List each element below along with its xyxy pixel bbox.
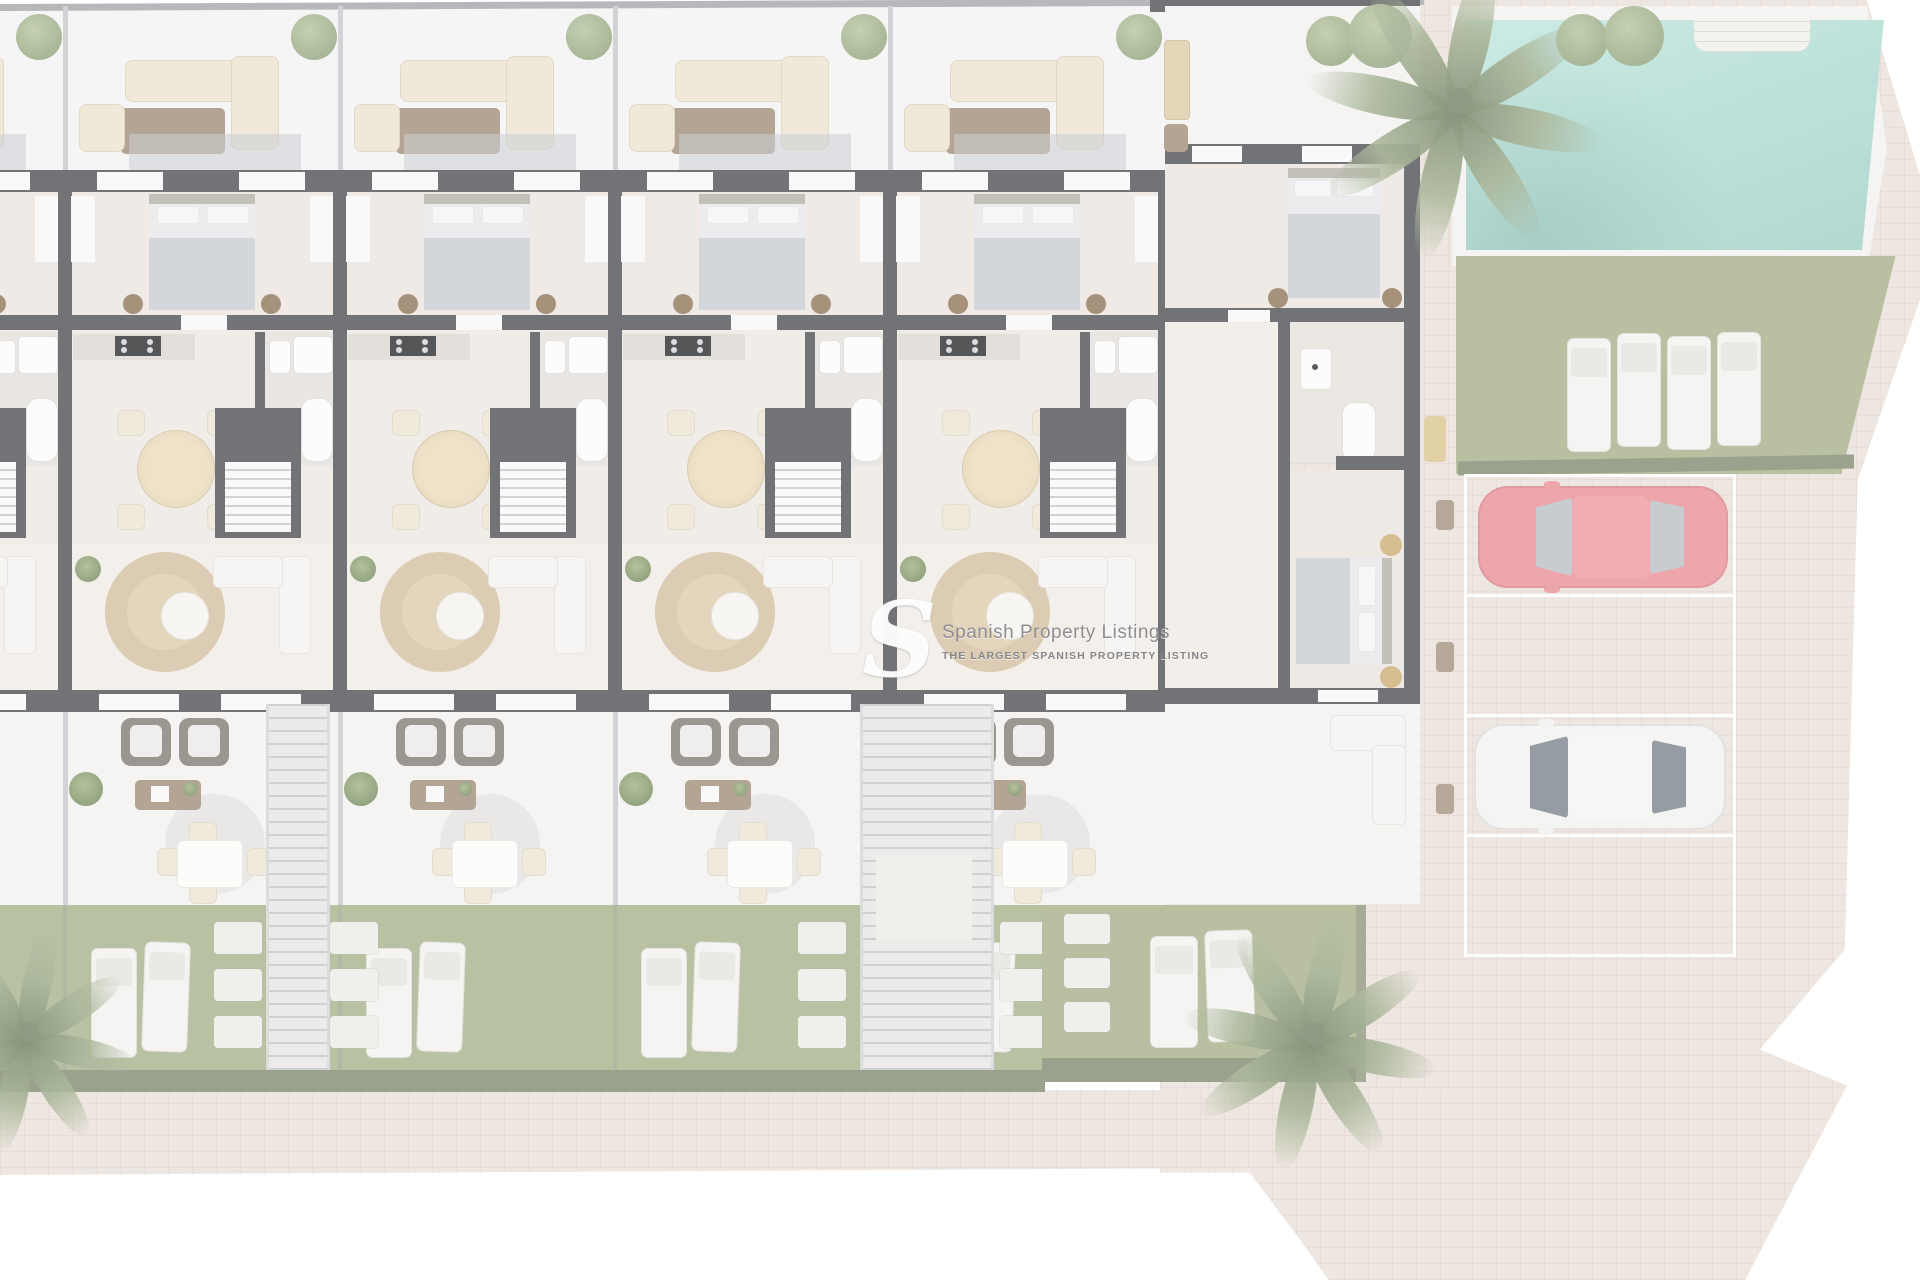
window bbox=[1064, 172, 1130, 190]
dining-table bbox=[412, 430, 490, 508]
tan-lounger bbox=[1424, 416, 1446, 462]
unit-party-wall bbox=[58, 170, 72, 712]
sofa bbox=[213, 556, 283, 588]
window bbox=[1046, 694, 1126, 710]
sofa bbox=[763, 556, 833, 588]
door-opening bbox=[181, 315, 227, 330]
plant bbox=[458, 782, 472, 796]
stepping-stone bbox=[214, 922, 262, 954]
bush bbox=[841, 14, 887, 60]
round-armchair bbox=[986, 592, 1034, 640]
pillow bbox=[207, 206, 249, 224]
wardrobe bbox=[310, 196, 334, 262]
stepping-stone bbox=[1064, 914, 1110, 944]
bed-headboard bbox=[699, 194, 805, 204]
unit-party-wall bbox=[883, 170, 897, 712]
tv bbox=[426, 786, 444, 802]
pillow bbox=[757, 206, 799, 224]
terrace-divider bbox=[613, 712, 618, 905]
round-bush bbox=[1348, 4, 1412, 68]
pergola-shadow bbox=[679, 134, 851, 170]
sofa bbox=[1104, 556, 1136, 654]
nightstand bbox=[1086, 294, 1106, 314]
garden-divider-hedge bbox=[613, 905, 617, 1072]
side-table bbox=[1164, 124, 1188, 152]
unit-party-wall bbox=[333, 170, 347, 712]
stair-landing bbox=[876, 856, 972, 940]
pillow bbox=[157, 206, 199, 224]
car-mirror bbox=[1538, 827, 1554, 835]
terrace-armchair bbox=[454, 718, 504, 766]
wall bbox=[1165, 688, 1420, 704]
sun-lounger bbox=[1150, 936, 1198, 1048]
bed-headboard bbox=[1382, 558, 1392, 664]
dining-chair bbox=[392, 410, 420, 436]
outdoor-sofa bbox=[1372, 745, 1406, 825]
cooktop bbox=[665, 336, 711, 356]
garden-hedge bbox=[0, 1070, 1045, 1092]
bathtub bbox=[301, 398, 333, 462]
car-mirror bbox=[1538, 719, 1554, 727]
pool-water bbox=[1466, 20, 1886, 250]
bathtub bbox=[1342, 402, 1376, 462]
outdoor-stair-west bbox=[266, 704, 330, 1092]
armchair bbox=[79, 104, 125, 152]
bathroom-sink bbox=[0, 340, 16, 374]
car-rear-glass bbox=[1652, 740, 1686, 814]
shower bbox=[568, 336, 608, 374]
bush bbox=[619, 772, 653, 806]
terrace-armchair bbox=[179, 718, 229, 766]
pillow bbox=[1294, 180, 1332, 197]
gold-pouf bbox=[1380, 666, 1402, 688]
shower bbox=[18, 336, 58, 374]
car-windshield bbox=[1530, 736, 1568, 818]
window bbox=[374, 694, 454, 710]
dining-chair bbox=[117, 410, 145, 436]
bush bbox=[69, 772, 103, 806]
pillow bbox=[1358, 566, 1376, 606]
bed-blanket bbox=[1296, 558, 1350, 664]
car-roof bbox=[1572, 496, 1650, 578]
unit-party-wall bbox=[608, 170, 622, 712]
wardrobe bbox=[860, 196, 884, 262]
door-opening bbox=[456, 315, 502, 330]
stepping-stone bbox=[1000, 922, 1048, 954]
window bbox=[647, 172, 713, 190]
white-car bbox=[1474, 724, 1726, 830]
bush bbox=[1116, 14, 1162, 60]
pergola-shadow bbox=[0, 134, 26, 170]
window bbox=[1302, 146, 1352, 162]
car-roof bbox=[1568, 734, 1652, 820]
garden-table bbox=[727, 840, 793, 888]
nightstand bbox=[0, 294, 6, 314]
pillow bbox=[707, 206, 749, 224]
sofa bbox=[4, 556, 36, 654]
terrace-divider bbox=[63, 6, 68, 170]
wardrobe bbox=[35, 196, 59, 262]
nightstand bbox=[948, 294, 968, 314]
bathroom-sink bbox=[819, 340, 841, 374]
round-armchair bbox=[711, 592, 759, 640]
garden-table bbox=[1002, 840, 1068, 888]
garden-divider-hedge bbox=[63, 905, 67, 1072]
plant bbox=[900, 556, 926, 582]
wardrobe bbox=[585, 196, 609, 262]
interior-stairs bbox=[0, 462, 16, 532]
interior-stairs bbox=[225, 462, 291, 532]
interior-stairs bbox=[1050, 462, 1116, 532]
stepping-stone bbox=[1064, 1002, 1110, 1032]
outdoor-sofa bbox=[125, 60, 245, 102]
bed-blanket bbox=[1288, 214, 1380, 298]
right-wing-hall bbox=[1165, 322, 1278, 690]
pergola-shadow bbox=[129, 134, 301, 170]
stepping-stone bbox=[798, 1016, 846, 1048]
bathroom-sink bbox=[269, 340, 291, 374]
cooktop bbox=[390, 336, 436, 356]
door-opening bbox=[1228, 310, 1270, 322]
car-mirror bbox=[1544, 481, 1560, 489]
sun-lounger bbox=[1204, 929, 1256, 1043]
wardrobe bbox=[1135, 196, 1159, 262]
bathtub bbox=[26, 398, 58, 462]
sofa bbox=[829, 556, 861, 654]
garden-chair bbox=[797, 848, 821, 876]
bed-blanket bbox=[699, 238, 805, 310]
armchair bbox=[629, 104, 675, 152]
nightstand bbox=[811, 294, 831, 314]
sofa bbox=[279, 556, 311, 654]
pool-steps bbox=[1694, 20, 1810, 52]
planter bbox=[1436, 784, 1454, 814]
stepping-stone bbox=[798, 922, 846, 954]
nightstand bbox=[398, 294, 418, 314]
terrace-armchair bbox=[671, 718, 721, 766]
shower bbox=[293, 336, 333, 374]
round-bush bbox=[1604, 6, 1664, 66]
bush bbox=[566, 14, 612, 60]
window bbox=[239, 172, 305, 190]
nightstand bbox=[673, 294, 693, 314]
sun-lounger bbox=[416, 941, 466, 1053]
bed-headboard bbox=[424, 194, 530, 204]
plant bbox=[75, 556, 101, 582]
bed-blanket bbox=[149, 238, 255, 310]
nightstand bbox=[1268, 288, 1288, 308]
terrace-divider bbox=[888, 6, 893, 170]
garden-table bbox=[452, 840, 518, 888]
stepping-stone bbox=[330, 922, 378, 954]
bed-headboard bbox=[974, 194, 1080, 204]
pool-sun-lounger bbox=[1717, 332, 1761, 446]
wardrobe bbox=[71, 196, 95, 262]
gold-pouf bbox=[1380, 534, 1402, 556]
garden-table bbox=[177, 840, 243, 888]
window bbox=[99, 694, 179, 710]
terrace-divider bbox=[338, 712, 343, 905]
bathroom-sink bbox=[1094, 340, 1116, 374]
window bbox=[771, 694, 851, 710]
window bbox=[0, 172, 30, 190]
interior-stairs bbox=[500, 462, 566, 532]
dining-chair bbox=[942, 410, 970, 436]
car-rear-glass bbox=[1650, 500, 1684, 574]
window bbox=[1192, 146, 1242, 162]
paved-walkway-bottom bbox=[0, 1090, 1460, 1280]
sun-lounger bbox=[141, 941, 191, 1053]
stepping-stone bbox=[214, 969, 262, 1001]
unit-2 bbox=[340, 6, 615, 1072]
bed-headboard bbox=[1288, 168, 1380, 178]
nightstand bbox=[261, 294, 281, 314]
round-bush bbox=[1556, 14, 1608, 66]
sofa bbox=[488, 556, 558, 588]
stepping-stone bbox=[214, 1016, 262, 1048]
outdoor-sofa bbox=[950, 60, 1070, 102]
wall bbox=[1165, 308, 1405, 322]
terrace-armchair bbox=[396, 718, 446, 766]
planter bbox=[1436, 500, 1454, 530]
red-car bbox=[1478, 486, 1728, 588]
pergola-shadow bbox=[404, 134, 576, 170]
stepping-stone bbox=[330, 1016, 378, 1048]
bathtub bbox=[1126, 398, 1158, 462]
armchair bbox=[354, 104, 400, 152]
pillow bbox=[482, 206, 524, 224]
car-mirror bbox=[1544, 585, 1560, 593]
window bbox=[922, 172, 988, 190]
sun-lounger bbox=[691, 941, 741, 1053]
dining-chair bbox=[117, 504, 145, 530]
shower bbox=[843, 336, 883, 374]
cooktop bbox=[115, 336, 161, 356]
outdoor-sofa bbox=[400, 60, 520, 102]
armchair bbox=[904, 104, 950, 152]
garden-chair bbox=[1072, 848, 1096, 876]
pillow bbox=[432, 206, 474, 224]
plant bbox=[350, 556, 376, 582]
shower bbox=[1118, 336, 1158, 374]
sofa bbox=[554, 556, 586, 654]
nightstand bbox=[536, 294, 556, 314]
dining-chair bbox=[667, 410, 695, 436]
pool-sun-lounger bbox=[1567, 338, 1611, 452]
bed-blanket bbox=[424, 238, 530, 310]
nightstand bbox=[123, 294, 143, 314]
right-wing-outer-wall bbox=[1404, 144, 1420, 690]
terrace-divider bbox=[338, 6, 343, 170]
wardrobe bbox=[346, 196, 370, 262]
window bbox=[514, 172, 580, 190]
sun-lounger bbox=[91, 948, 137, 1058]
wardrobe bbox=[621, 196, 645, 262]
dining-table bbox=[687, 430, 765, 508]
bathroom-sink bbox=[544, 340, 566, 374]
planter bbox=[1436, 642, 1454, 672]
unit-0-partial bbox=[0, 6, 65, 1072]
window bbox=[789, 172, 855, 190]
interior-stairs bbox=[775, 462, 841, 532]
window bbox=[372, 172, 438, 190]
floor-plan-scene: S Spanish Property Listings THE LARGEST … bbox=[0, 0, 1920, 1280]
sun-lounger bbox=[641, 948, 687, 1058]
wardrobe bbox=[896, 196, 920, 262]
stepping-stone bbox=[798, 969, 846, 1001]
sofa bbox=[1038, 556, 1108, 588]
wall bbox=[1336, 456, 1406, 470]
plant bbox=[183, 782, 197, 796]
stepping-stone bbox=[330, 969, 378, 1001]
pool-sun-lounger bbox=[1667, 336, 1711, 450]
plant bbox=[1008, 782, 1022, 796]
parking-slot bbox=[1464, 594, 1736, 717]
plant bbox=[733, 782, 747, 796]
window bbox=[1318, 690, 1378, 702]
door-opening bbox=[1006, 315, 1052, 330]
outdoor-sofa bbox=[675, 60, 795, 102]
bed-headboard bbox=[149, 194, 255, 204]
wall bbox=[1278, 322, 1290, 690]
bed-blanket bbox=[974, 238, 1080, 310]
plant bbox=[625, 556, 651, 582]
dining-chair bbox=[392, 504, 420, 530]
hedge bbox=[1042, 1058, 1366, 1082]
pillow bbox=[1032, 206, 1074, 224]
bathtub bbox=[576, 398, 608, 462]
car-windshield bbox=[1536, 498, 1572, 576]
window bbox=[496, 694, 576, 710]
round-armchair bbox=[161, 592, 209, 640]
pillow bbox=[1336, 180, 1374, 197]
bush bbox=[291, 14, 337, 60]
terrace-divider bbox=[63, 712, 68, 905]
terrace-armchair bbox=[1004, 718, 1054, 766]
door-opening bbox=[731, 315, 777, 330]
terrace-armchair bbox=[729, 718, 779, 766]
stepping-stone bbox=[1000, 1016, 1048, 1048]
parking-slot bbox=[1464, 834, 1736, 957]
dining-table bbox=[137, 430, 215, 508]
terrace-divider bbox=[613, 6, 618, 170]
round-armchair bbox=[436, 592, 484, 640]
bathtub bbox=[851, 398, 883, 462]
cooktop bbox=[940, 336, 986, 356]
pergola-shadow bbox=[954, 134, 1126, 170]
terrace-armchair bbox=[121, 718, 171, 766]
hedge bbox=[1356, 905, 1366, 1082]
pool-sun-lounger bbox=[1617, 333, 1661, 447]
sofa bbox=[0, 556, 8, 588]
stepping-stone bbox=[1000, 969, 1048, 1001]
dining-table bbox=[962, 430, 1040, 508]
dining-chair bbox=[942, 504, 970, 530]
faucet bbox=[1312, 364, 1318, 370]
window bbox=[97, 172, 163, 190]
pillow bbox=[982, 206, 1024, 224]
dining-chair bbox=[667, 504, 695, 530]
bush bbox=[16, 14, 62, 60]
stepping-stone bbox=[1064, 958, 1110, 988]
pillow bbox=[1358, 612, 1376, 652]
tv bbox=[701, 786, 719, 802]
garden-chair bbox=[522, 848, 546, 876]
tv bbox=[151, 786, 169, 802]
bush bbox=[344, 772, 378, 806]
window bbox=[0, 694, 26, 710]
nightstand bbox=[1382, 288, 1402, 308]
unit-3 bbox=[615, 6, 890, 1072]
pool-bench bbox=[1164, 40, 1190, 120]
window bbox=[649, 694, 729, 710]
